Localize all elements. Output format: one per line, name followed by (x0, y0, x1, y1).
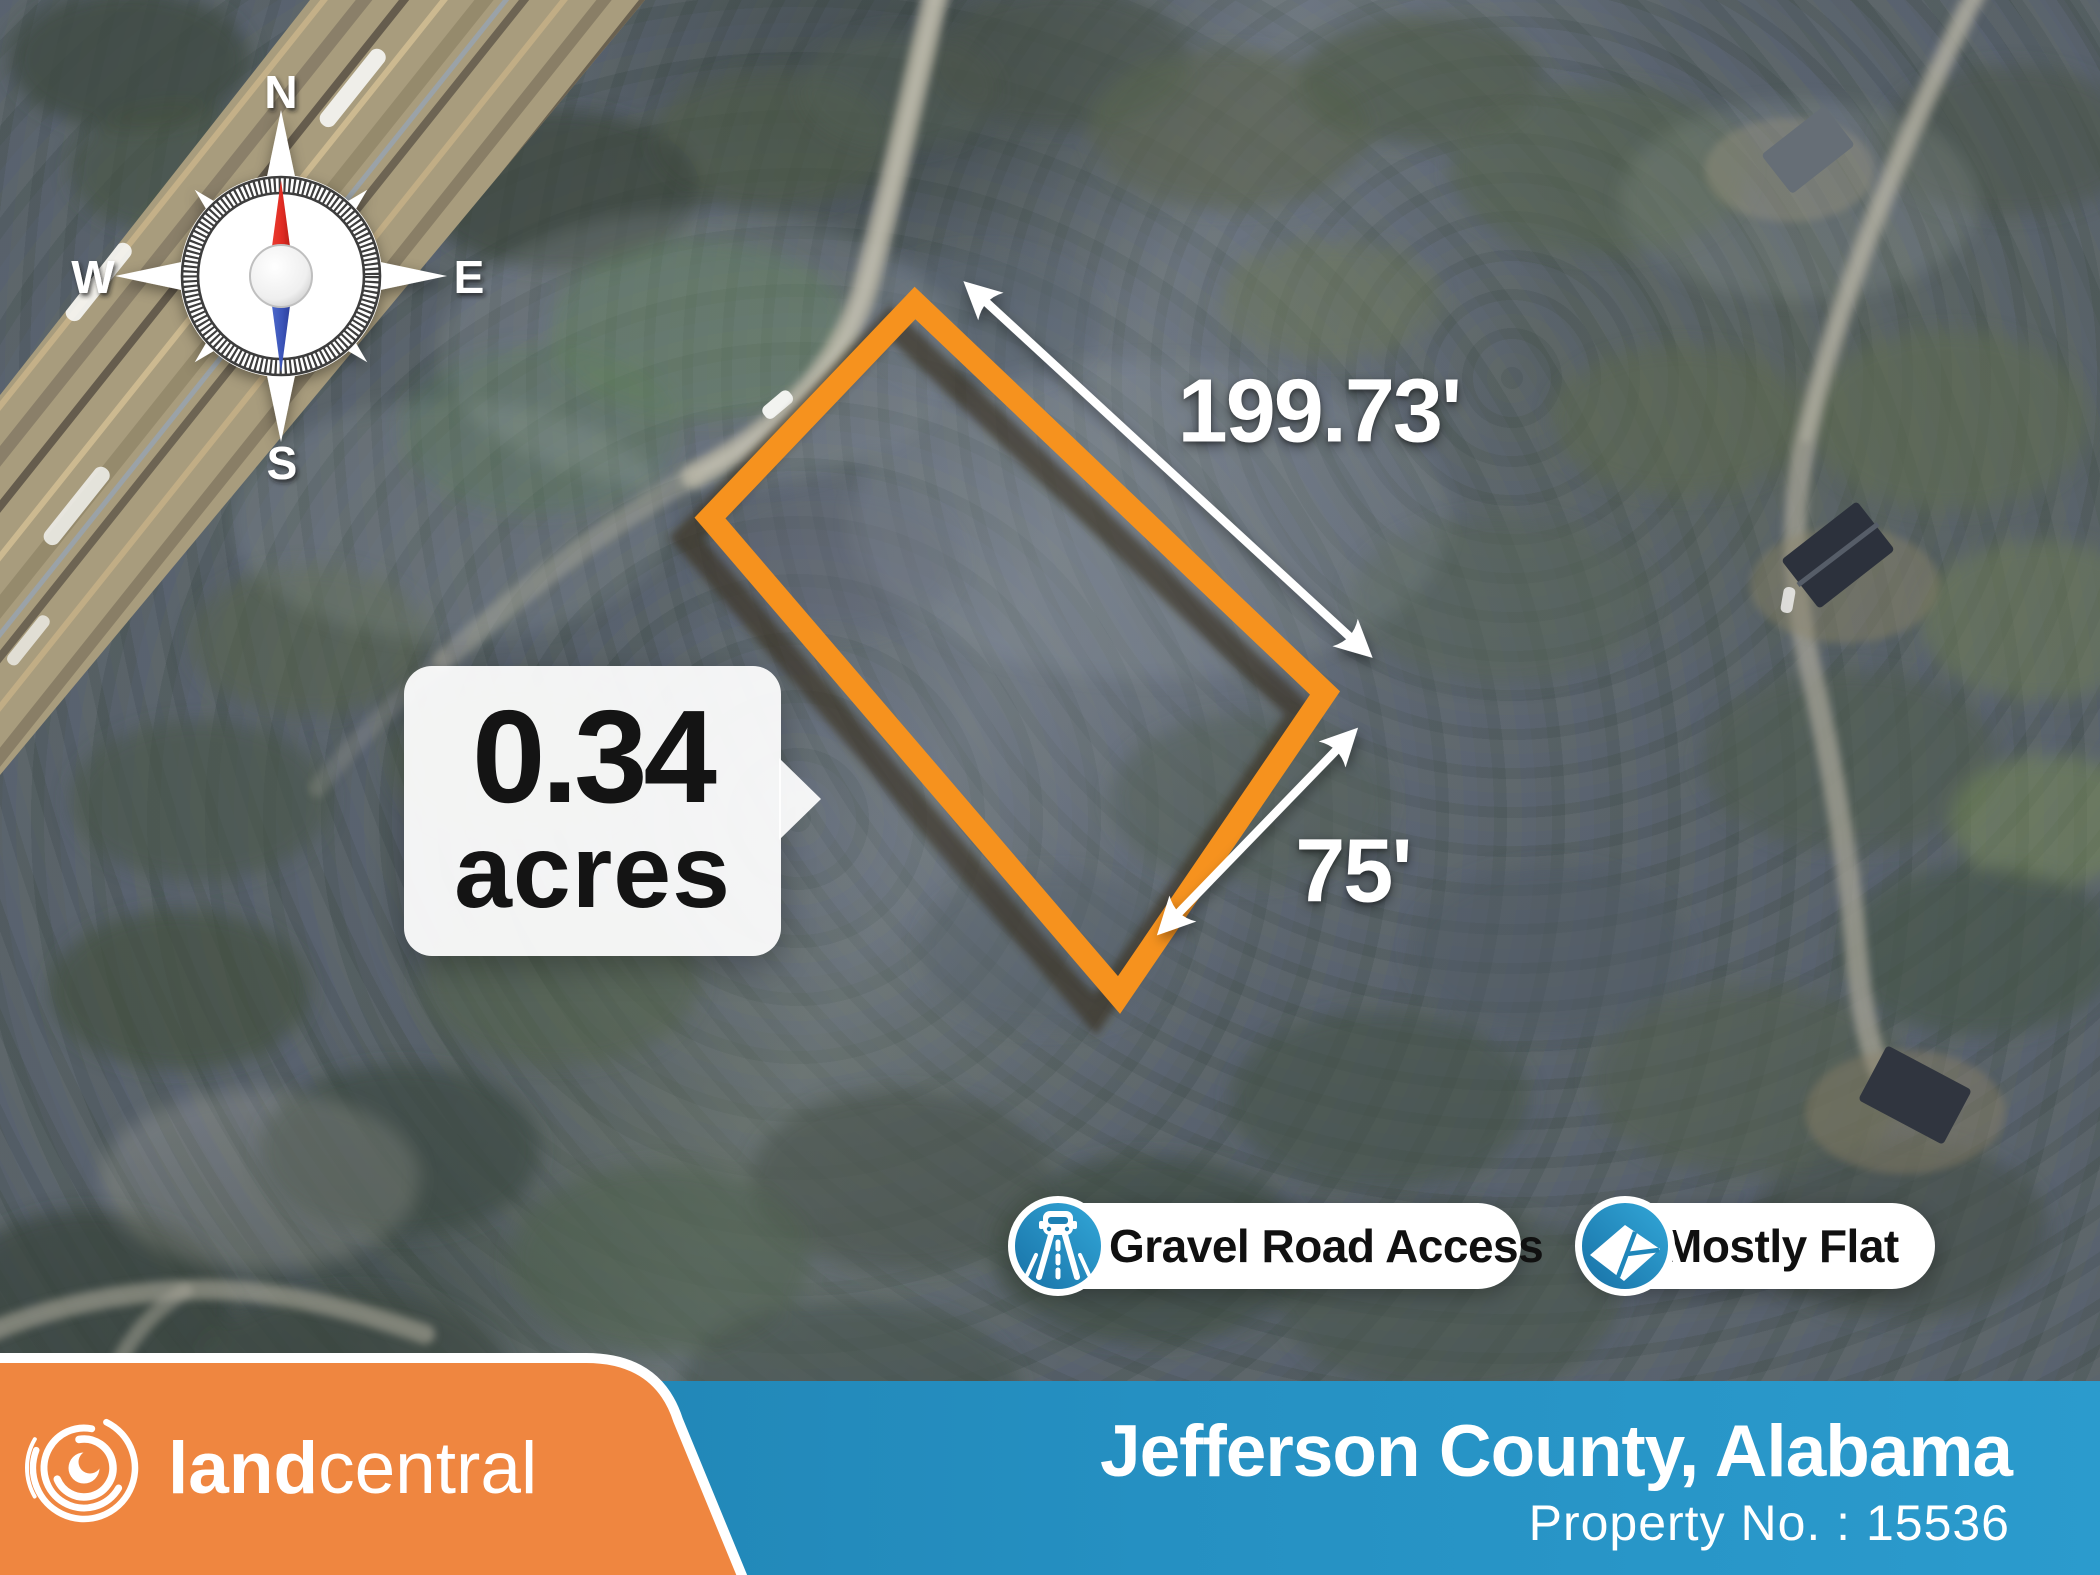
landcentral-logo-icon (24, 1408, 144, 1528)
brand-name-light: central (318, 1428, 537, 1509)
property-number: Property No. : 15536 (1529, 1494, 2010, 1552)
brand-name-bold: land (168, 1428, 318, 1509)
brand-plate (0, 0, 2100, 1575)
brand-lockup: landcentral (24, 1406, 537, 1530)
brand-name: landcentral (168, 1432, 537, 1505)
property-listing-graphic: N E S W 199.73' 75' 0.34 acres (0, 0, 2100, 1575)
location-title: Jefferson County, Alabama (1100, 1410, 2012, 1493)
